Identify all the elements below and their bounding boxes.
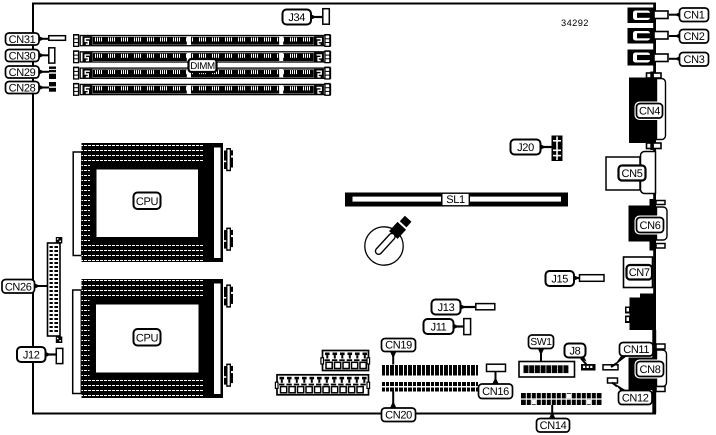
svg-text:CPU: CPU [136, 196, 159, 208]
svg-text:J8: J8 [570, 345, 581, 357]
svg-text:CN11: CN11 [623, 344, 649, 356]
svg-text:34292: 34292 [561, 18, 589, 28]
svg-text:CN14: CN14 [540, 420, 567, 432]
svg-text:CN5: CN5 [622, 168, 643, 180]
svg-text:J20: J20 [517, 142, 534, 154]
svg-text:CPU: CPU [136, 332, 159, 344]
svg-text:CN30: CN30 [9, 50, 36, 62]
svg-text:CN12: CN12 [622, 392, 649, 404]
svg-text:DIMM: DIMM [190, 61, 215, 72]
svg-text:SW1: SW1 [530, 337, 552, 348]
svg-text:CN1: CN1 [684, 10, 705, 22]
svg-text:J13: J13 [438, 302, 455, 314]
svg-text:CN31: CN31 [9, 34, 36, 46]
svg-text:J11: J11 [431, 321, 447, 333]
svg-text:CN19: CN19 [385, 339, 412, 351]
svg-text:CN29: CN29 [9, 67, 36, 79]
svg-text:CN20: CN20 [385, 409, 412, 421]
svg-text:CN26: CN26 [5, 281, 32, 293]
svg-text:J34: J34 [288, 12, 305, 24]
svg-text:CN3: CN3 [684, 54, 705, 66]
svg-text:CN2: CN2 [684, 31, 705, 43]
svg-text:J12: J12 [23, 349, 40, 361]
svg-text:CN8: CN8 [640, 364, 661, 376]
svg-text:CN6: CN6 [640, 220, 661, 232]
svg-text:CN7: CN7 [629, 267, 650, 279]
svg-text:CN28: CN28 [9, 82, 36, 94]
svg-text:CN4: CN4 [639, 106, 660, 118]
svg-text:J15: J15 [551, 273, 568, 285]
svg-text:CN16: CN16 [482, 386, 509, 398]
svg-text:SL1: SL1 [446, 194, 465, 206]
